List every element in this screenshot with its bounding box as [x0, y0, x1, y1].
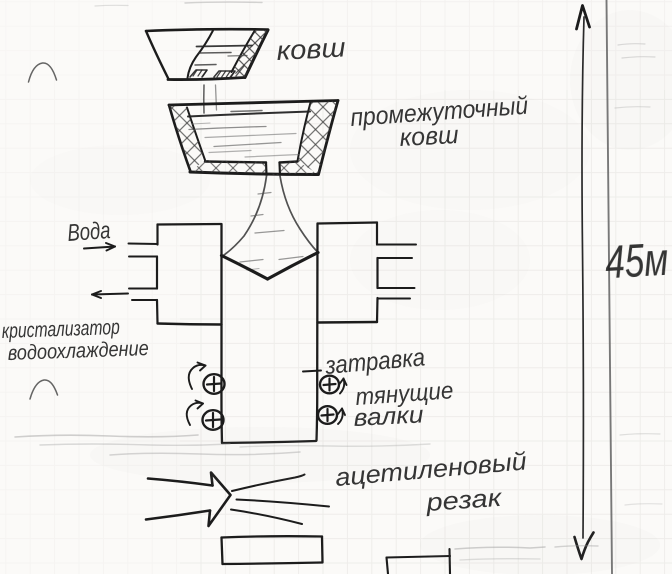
svg-text:ковш: ковш	[399, 121, 460, 152]
svg-text:водоохлаждение: водоохлаждение	[7, 337, 149, 365]
svg-text:Вода: Вода	[67, 217, 112, 247]
svg-text:45м: 45м	[604, 233, 670, 288]
svg-text:резак: резак	[424, 484, 503, 517]
svg-text:ковш: ковш	[276, 32, 346, 66]
svg-text:валки: валки	[353, 401, 424, 432]
